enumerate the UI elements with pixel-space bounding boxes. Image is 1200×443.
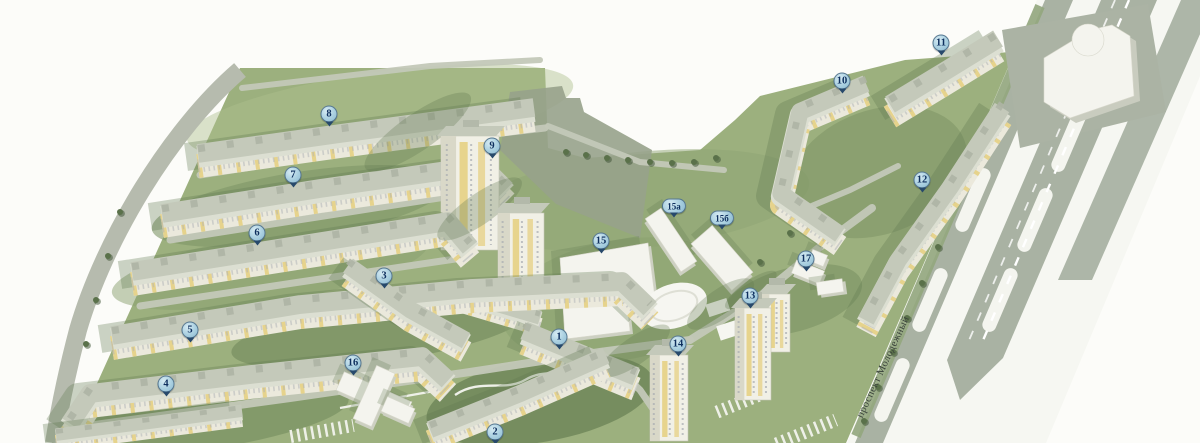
building-badge-6: 6	[249, 225, 266, 242]
masterplan: 12345678910111213141515а15б1617 проспект…	[0, 0, 1200, 443]
building-badge-5: 5	[182, 322, 199, 339]
building-badge-11: 11	[933, 35, 950, 52]
building-badge-13: 13	[742, 288, 759, 305]
building-badge-4: 4	[158, 376, 175, 393]
building-badge-8: 8	[321, 106, 338, 123]
building-badge-7: 7	[285, 167, 302, 184]
building-badge-10: 10	[834, 73, 851, 90]
building-badge-1: 1	[551, 329, 568, 346]
site-plan-rendering	[0, 0, 1200, 443]
building-badge-9: 9	[484, 138, 501, 155]
building-badge-15: 15	[593, 233, 610, 250]
building-badge-3: 3	[376, 268, 393, 285]
building-badge-2: 2	[487, 424, 504, 441]
building-badge-14: 14	[670, 336, 687, 353]
building-badge-15б: 15б	[710, 211, 734, 226]
building-badge-17: 17	[798, 251, 815, 268]
building-badge-12: 12	[914, 172, 931, 189]
building-badge-16: 16	[345, 355, 362, 372]
building-badge-15а: 15а	[662, 199, 686, 214]
